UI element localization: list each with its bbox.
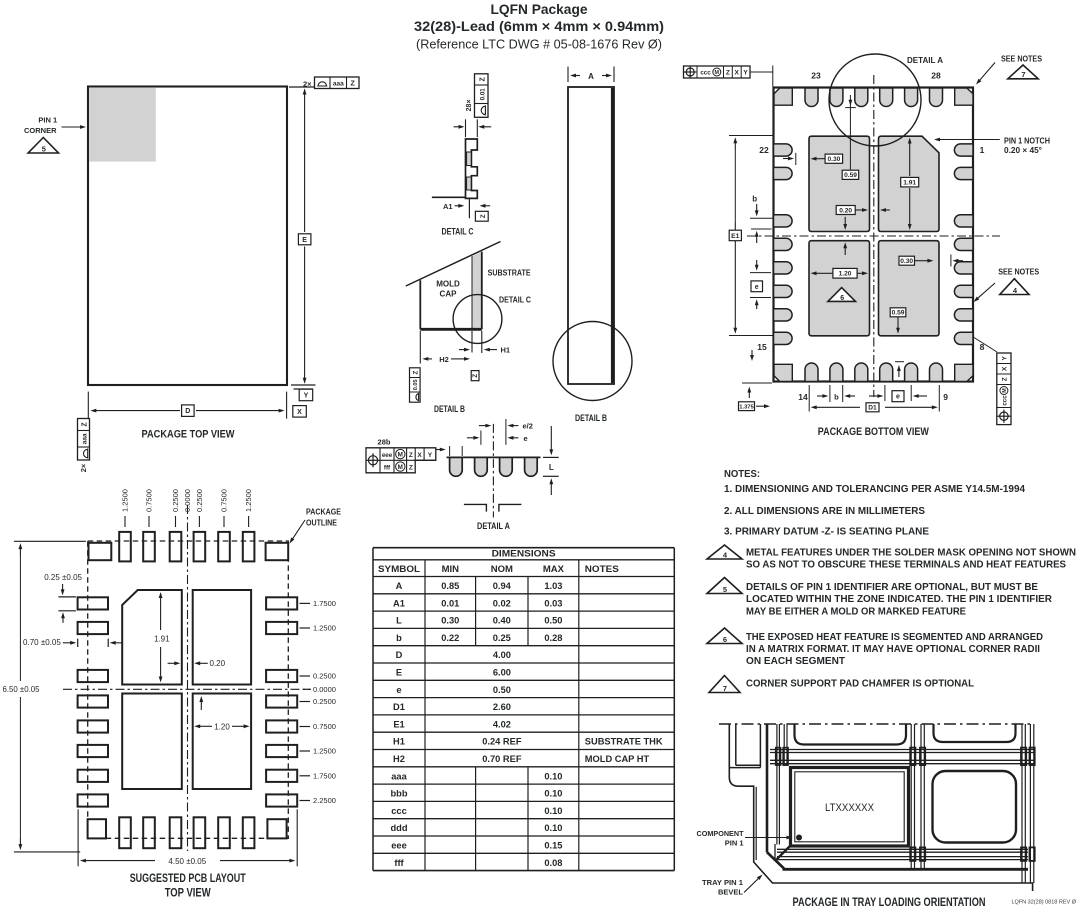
svg-text:NOM: NOM bbox=[491, 564, 513, 575]
svg-text:0.10: 0.10 bbox=[544, 823, 562, 833]
svg-text:BEVEL: BEVEL bbox=[718, 888, 743, 897]
svg-text:MAY BE EITHER A MOLD OR MARKED: MAY BE EITHER A MOLD OR MARKED FEATURE bbox=[746, 607, 966, 618]
svg-text:NOTES: NOTES bbox=[585, 564, 619, 575]
svg-text:ON EACH SEGMENT: ON EACH SEGMENT bbox=[746, 656, 845, 667]
svg-text:e: e bbox=[524, 434, 528, 443]
svg-text:e: e bbox=[896, 394, 900, 401]
svg-text:0.30: 0.30 bbox=[441, 616, 459, 626]
svg-text:ccc: ccc bbox=[391, 806, 407, 816]
svg-text:SO AS NOT TO OBSCURE THESE TE: SO AS NOT TO OBSCURE THESE TERMINALS AND… bbox=[746, 560, 1066, 571]
svg-text:0.28: 0.28 bbox=[544, 633, 562, 643]
svg-text:1.7500: 1.7500 bbox=[313, 772, 336, 781]
svg-text:fff: fff bbox=[384, 464, 391, 471]
svg-text:Y: Y bbox=[428, 452, 433, 459]
svg-text:0.25: 0.25 bbox=[493, 633, 511, 643]
svg-text:MAX: MAX bbox=[543, 564, 565, 575]
svg-text:SUBSTRATE: SUBSTRATE bbox=[488, 269, 532, 278]
svg-text:5: 5 bbox=[42, 144, 46, 153]
svg-text:Z: Z bbox=[351, 81, 356, 88]
svg-text:PIN 1: PIN 1 bbox=[725, 839, 744, 848]
svg-text:A1: A1 bbox=[393, 598, 405, 608]
svg-text:X: X bbox=[417, 452, 422, 459]
svg-text:e: e bbox=[396, 685, 401, 695]
svg-text:22: 22 bbox=[759, 145, 769, 155]
svg-text:DETAIL C: DETAIL C bbox=[499, 295, 531, 304]
svg-text:CORNER: CORNER bbox=[24, 126, 57, 135]
svg-text:0.50: 0.50 bbox=[493, 685, 511, 695]
svg-text:NOTES:: NOTES: bbox=[724, 469, 760, 480]
svg-text:7: 7 bbox=[723, 684, 727, 693]
svg-text:5: 5 bbox=[723, 585, 727, 594]
svg-text:6.00: 6.00 bbox=[493, 668, 511, 678]
svg-text:1.2500: 1.2500 bbox=[313, 624, 336, 633]
svg-text:0.0000: 0.0000 bbox=[183, 489, 192, 512]
svg-text:0.7500: 0.7500 bbox=[313, 722, 336, 731]
svg-text:0.02: 0.02 bbox=[493, 598, 511, 608]
svg-text:b: b bbox=[396, 633, 402, 643]
svg-text:e/2: e/2 bbox=[523, 422, 533, 431]
svg-text:1.91: 1.91 bbox=[154, 634, 170, 643]
svg-text:1.03: 1.03 bbox=[544, 581, 562, 591]
svg-text:7: 7 bbox=[1021, 70, 1025, 79]
svg-text:(Reference LTC DWG # 05-08-167: (Reference LTC DWG # 05-08-1676 Rev Ø) bbox=[416, 38, 662, 52]
svg-text:D: D bbox=[396, 650, 403, 660]
svg-text:E1: E1 bbox=[393, 719, 404, 729]
svg-text:LTXXXXXX: LTXXXXXX bbox=[825, 802, 875, 814]
svg-text:0.50: 0.50 bbox=[544, 616, 562, 626]
svg-text:4.50 ±0.05: 4.50 ±0.05 bbox=[168, 857, 206, 866]
svg-text:X: X bbox=[297, 409, 302, 416]
svg-text:0.01: 0.01 bbox=[441, 598, 459, 608]
svg-text:A1: A1 bbox=[443, 202, 453, 211]
svg-text:0.15: 0.15 bbox=[544, 841, 562, 851]
svg-text:Z: Z bbox=[1002, 377, 1009, 381]
svg-text:1. DIMENSIONING AND TOLERANCIN: 1. DIMENSIONING AND TOLERANCING PER ASME… bbox=[724, 484, 1025, 495]
svg-text:0.0000: 0.0000 bbox=[313, 685, 336, 694]
svg-text:TOP VIEW: TOP VIEW bbox=[165, 888, 211, 900]
svg-text:6.50 ±0.05: 6.50 ±0.05 bbox=[3, 685, 41, 694]
svg-text:0.2500: 0.2500 bbox=[313, 672, 336, 681]
svg-text:ccc: ccc bbox=[700, 70, 711, 77]
svg-text:METAL FEATURES UNDER THE SOLDE: METAL FEATURES UNDER THE SOLDER MASK OPE… bbox=[746, 548, 1076, 559]
svg-text:1.2500: 1.2500 bbox=[313, 747, 336, 756]
svg-text:THE EXPOSED HEAT FEATURE IS SE: THE EXPOSED HEAT FEATURE IS SEGMENTED AN… bbox=[746, 632, 1043, 643]
svg-text:0.05: 0.05 bbox=[413, 379, 419, 390]
svg-text:2. ALL DIMENSIONS ARE IN MILLI: 2. ALL DIMENSIONS ARE IN MILLIMETERS bbox=[724, 506, 925, 517]
svg-text:ccc: ccc bbox=[1001, 395, 1008, 406]
svg-text:CORNER SUPPORT PAD CHAMFER IS: CORNER SUPPORT PAD CHAMFER IS OPTIONAL bbox=[746, 679, 974, 690]
svg-text:eee: eee bbox=[382, 452, 393, 459]
svg-text:DETAILS OF PIN 1 IDENTIFIER AR: DETAILS OF PIN 1 IDENTIFIER ARE OPTIONAL… bbox=[746, 582, 1038, 593]
svg-text:2.60: 2.60 bbox=[493, 702, 511, 712]
svg-text:L: L bbox=[549, 463, 554, 472]
svg-text:PACKAGE BOTTOM VIEW: PACKAGE BOTTOM VIEW bbox=[818, 426, 930, 438]
svg-text:28: 28 bbox=[931, 71, 941, 81]
svg-text:Z: Z bbox=[82, 422, 89, 427]
svg-text:MOLD CAP HT: MOLD CAP HT bbox=[585, 754, 650, 764]
svg-text:DETAIL A: DETAIL A bbox=[907, 55, 943, 65]
svg-text:0.40: 0.40 bbox=[493, 616, 511, 626]
svg-text:SUBSTRATE THK: SUBSTRATE THK bbox=[585, 737, 663, 747]
svg-text:DIMENSIONS: DIMENSIONS bbox=[492, 549, 556, 560]
svg-text:PACKAGE IN TRAY LOADING ORIENT: PACKAGE IN TRAY LOADING ORIENTATION bbox=[793, 897, 986, 909]
svg-text:aaa: aaa bbox=[333, 81, 344, 88]
svg-text:CAP: CAP bbox=[440, 290, 458, 299]
svg-text:14: 14 bbox=[798, 392, 808, 402]
svg-text:15: 15 bbox=[757, 342, 767, 352]
svg-text:D1: D1 bbox=[868, 405, 877, 412]
svg-text:D: D bbox=[185, 408, 190, 415]
svg-text:A: A bbox=[588, 72, 594, 81]
svg-text:aaa: aaa bbox=[81, 433, 88, 444]
svg-text:H1: H1 bbox=[393, 737, 405, 747]
svg-text:eee: eee bbox=[391, 841, 407, 851]
svg-text:1.2500: 1.2500 bbox=[244, 489, 253, 512]
svg-text:b: b bbox=[752, 195, 757, 204]
svg-text:DETAIL A: DETAIL A bbox=[477, 521, 510, 531]
svg-text:PACKAGE TOP VIEW: PACKAGE TOP VIEW bbox=[142, 429, 236, 441]
svg-text:2×: 2× bbox=[303, 80, 312, 89]
svg-text:1.20: 1.20 bbox=[839, 271, 852, 278]
svg-text:Y: Y bbox=[304, 393, 309, 400]
svg-text:0.20 × 45°: 0.20 × 45° bbox=[1004, 146, 1042, 155]
svg-text:0.7500: 0.7500 bbox=[220, 489, 229, 512]
svg-text:0.85: 0.85 bbox=[441, 581, 459, 591]
svg-text:H1: H1 bbox=[501, 345, 511, 354]
svg-text:PIN 1: PIN 1 bbox=[38, 116, 57, 125]
svg-text:4.00: 4.00 bbox=[493, 650, 511, 660]
svg-text:bbb: bbb bbox=[390, 789, 407, 799]
svg-text:Z: Z bbox=[409, 452, 413, 459]
svg-text:TRAY PIN 1: TRAY PIN 1 bbox=[702, 878, 743, 887]
svg-text:A: A bbox=[396, 581, 403, 591]
svg-text:D1: D1 bbox=[393, 702, 405, 712]
svg-text:0.10: 0.10 bbox=[544, 806, 562, 816]
svg-text:Y: Y bbox=[1002, 355, 1009, 360]
svg-text:23: 23 bbox=[811, 71, 821, 81]
svg-text:DETAIL B: DETAIL B bbox=[434, 404, 465, 414]
svg-text:4.02: 4.02 bbox=[493, 719, 511, 729]
svg-text:E1: E1 bbox=[731, 233, 740, 240]
svg-text:3. PRIMARY DATUM -Z- IS SEATIN: 3. PRIMARY DATUM -Z- IS SEATING PLANE bbox=[724, 527, 929, 538]
svg-text:0.30: 0.30 bbox=[827, 156, 840, 163]
svg-text:0.22: 0.22 bbox=[441, 633, 459, 643]
svg-text:0.24 REF: 0.24 REF bbox=[482, 737, 522, 747]
svg-text:Z: Z bbox=[412, 370, 419, 374]
svg-text:0.30: 0.30 bbox=[900, 258, 913, 265]
svg-text:1.20: 1.20 bbox=[214, 723, 230, 732]
svg-text:COMPONENT: COMPONENT bbox=[697, 829, 744, 838]
svg-text:1.7500: 1.7500 bbox=[313, 599, 336, 608]
svg-text:0.25 ±0.05: 0.25 ±0.05 bbox=[44, 573, 82, 582]
svg-text:0.10: 0.10 bbox=[544, 771, 562, 781]
svg-text:IN A MATRIX FORMAT. IT MAY HAV: IN A MATRIX FORMAT. IT MAY HAVE OPTIONAL… bbox=[746, 644, 1040, 655]
svg-text:Z: Z bbox=[472, 374, 479, 378]
svg-text:M: M bbox=[1002, 388, 1008, 393]
svg-text:0.2500: 0.2500 bbox=[313, 697, 336, 706]
svg-text:1.375: 1.375 bbox=[739, 404, 754, 410]
svg-text:2.2500: 2.2500 bbox=[313, 796, 336, 805]
svg-text:6: 6 bbox=[723, 635, 727, 644]
svg-text:H2: H2 bbox=[439, 355, 449, 364]
svg-text:6: 6 bbox=[840, 295, 844, 302]
svg-text:Z: Z bbox=[480, 77, 487, 82]
svg-text:0.2500: 0.2500 bbox=[171, 489, 180, 512]
svg-text:L: L bbox=[396, 616, 402, 626]
svg-text:Z: Z bbox=[409, 464, 413, 471]
svg-text:LQFN Package: LQFN Package bbox=[491, 1, 588, 17]
svg-text:2×: 2× bbox=[79, 463, 88, 472]
svg-text:0.10: 0.10 bbox=[544, 789, 562, 799]
svg-text:1.2500: 1.2500 bbox=[121, 489, 130, 512]
svg-text:0.08: 0.08 bbox=[544, 858, 562, 868]
svg-text:PACKAGE: PACKAGE bbox=[306, 508, 341, 517]
svg-text:28×: 28× bbox=[466, 99, 473, 111]
svg-text:MOLD: MOLD bbox=[436, 280, 460, 289]
svg-text:aaa: aaa bbox=[391, 771, 407, 781]
svg-text:0.70 REF: 0.70 REF bbox=[482, 754, 522, 764]
svg-text:SUGGESTED PCB LAYOUT: SUGGESTED PCB LAYOUT bbox=[130, 873, 246, 885]
svg-text:0.70 ±0.05: 0.70 ±0.05 bbox=[23, 638, 61, 647]
svg-text:OUTLINE: OUTLINE bbox=[306, 519, 337, 528]
svg-text:0.7500: 0.7500 bbox=[145, 489, 154, 512]
svg-text:0.03: 0.03 bbox=[544, 598, 562, 608]
svg-text:Z: Z bbox=[726, 70, 730, 77]
svg-text:LOCATED WITHIN THE ZONE INDICA: LOCATED WITHIN THE ZONE INDICATED. THE P… bbox=[746, 594, 1053, 605]
svg-text:Y: Y bbox=[743, 70, 748, 77]
svg-text:PIN 1 NOTCH: PIN 1 NOTCH bbox=[1004, 137, 1050, 146]
svg-text:SEE NOTES: SEE NOTES bbox=[998, 268, 1039, 277]
svg-text:M: M bbox=[398, 452, 403, 459]
svg-text:DETAIL B: DETAIL B bbox=[575, 413, 607, 423]
svg-text:E: E bbox=[396, 668, 402, 678]
svg-text:1: 1 bbox=[980, 145, 985, 155]
svg-text:e: e bbox=[755, 284, 759, 291]
svg-text:fff: fff bbox=[394, 858, 404, 868]
svg-text:MIN: MIN bbox=[442, 564, 460, 575]
svg-text:SYMBOL: SYMBOL bbox=[378, 564, 420, 575]
svg-text:b: b bbox=[834, 392, 839, 401]
svg-text:X: X bbox=[735, 70, 740, 77]
svg-text:SEE NOTES: SEE NOTES bbox=[1001, 55, 1042, 64]
svg-text:E: E bbox=[302, 237, 307, 244]
svg-text:X: X bbox=[1002, 366, 1009, 371]
svg-text:M: M bbox=[715, 70, 720, 76]
svg-text:H2: H2 bbox=[393, 754, 405, 764]
svg-text:1.91: 1.91 bbox=[903, 180, 916, 187]
svg-text:0.20: 0.20 bbox=[210, 659, 226, 668]
svg-text:28b: 28b bbox=[378, 438, 391, 447]
svg-text:0.01: 0.01 bbox=[479, 88, 486, 101]
svg-text:0.2500: 0.2500 bbox=[195, 489, 204, 512]
svg-text:0.59: 0.59 bbox=[892, 310, 905, 317]
svg-text:Z: Z bbox=[480, 214, 487, 218]
svg-text:0.20: 0.20 bbox=[839, 207, 852, 214]
svg-text:0.94: 0.94 bbox=[493, 581, 512, 591]
svg-text:0.59: 0.59 bbox=[844, 172, 857, 179]
svg-text:M: M bbox=[398, 464, 403, 471]
svg-text:LQFN 32(28) 0818 REV Ø: LQFN 32(28) 0818 REV Ø bbox=[1011, 900, 1076, 906]
svg-text:ddd: ddd bbox=[390, 823, 407, 833]
svg-text:9: 9 bbox=[943, 392, 948, 402]
svg-text:32(28)-Lead (6mm × 4mm × 0.94m: 32(28)-Lead (6mm × 4mm × 0.94mm) bbox=[414, 18, 664, 34]
svg-text:DETAIL C: DETAIL C bbox=[442, 227, 474, 237]
